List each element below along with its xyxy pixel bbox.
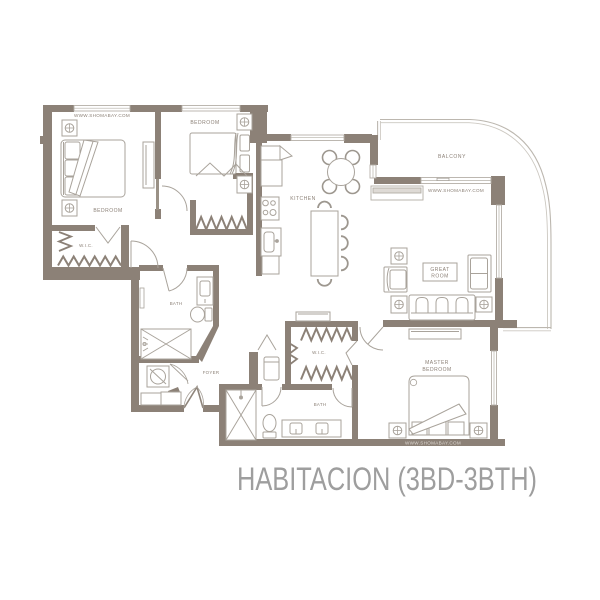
svg-text:ROOM: ROOM: [431, 274, 449, 280]
svg-text:HABITACION (3BD-3BTH): HABITACION (3BD-3BTH): [237, 461, 537, 497]
svg-text:BALCONY: BALCONY: [438, 154, 466, 160]
svg-text:WWW.SHOMABAY.COM: WWW.SHOMABAY.COM: [405, 441, 461, 446]
svg-text:BEDROOM: BEDROOM: [93, 208, 122, 214]
svg-text:WWW.SHOMABAY.COM: WWW.SHOMABAY.COM: [74, 113, 130, 118]
svg-text:MASTER: MASTER: [425, 360, 449, 366]
svg-text:BATH: BATH: [314, 402, 327, 407]
svg-text:W.I.C.: W.I.C.: [79, 243, 93, 248]
svg-text:BEDROOM: BEDROOM: [190, 120, 219, 126]
svg-text:WWW.SHOMABAY.COM: WWW.SHOMABAY.COM: [428, 188, 484, 193]
svg-text:BATH: BATH: [170, 301, 183, 306]
svg-text:BEDROOM: BEDROOM: [422, 367, 451, 373]
svg-text:GREAT: GREAT: [430, 267, 449, 273]
svg-text:KITCHEN: KITCHEN: [290, 196, 315, 202]
svg-text:FOYER: FOYER: [203, 370, 220, 375]
svg-text:W.I.C.: W.I.C.: [312, 350, 326, 355]
